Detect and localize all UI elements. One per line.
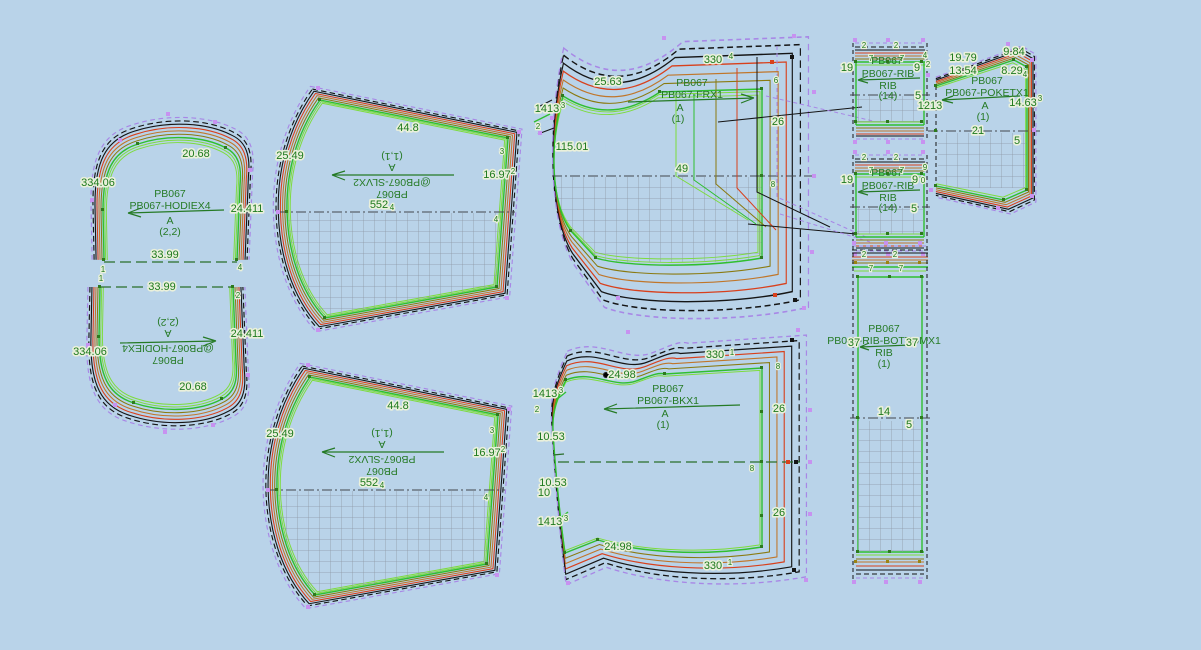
grade-point: 4: [729, 52, 734, 61]
measurement-right: 24.411: [231, 203, 264, 215]
measurement-top: 33.99: [148, 281, 176, 293]
grade-point: 3: [1038, 94, 1043, 103]
piece-title: PB067: [871, 167, 903, 179]
measurement-top: 44.8: [387, 400, 408, 412]
measurement-center: 552: [360, 477, 378, 489]
piece-code: @PB067-HODIEX4: [122, 342, 214, 354]
measurement-notch-top: 1413: [533, 388, 557, 400]
grade-point: 4: [484, 493, 489, 502]
piece-qty: (14): [879, 90, 898, 102]
grade-point: 8: [771, 180, 776, 189]
measurement-left: 334.06: [73, 346, 107, 358]
measurement-left: 19: [841, 62, 853, 74]
piece-title: PB067: [871, 55, 903, 67]
measurement-left-a: 10.53: [537, 431, 565, 443]
measurement-side: 26: [772, 116, 784, 128]
piece-qty: (2,2): [159, 226, 181, 238]
grade-point: 3: [500, 147, 505, 156]
piece-qty: (1): [672, 113, 685, 125]
grade-point: 2: [511, 167, 516, 176]
piece-title: PB067: [868, 323, 900, 335]
grade-point: 2: [926, 60, 931, 69]
piece-code: PB067-RIB-BOTTOMX1: [827, 335, 941, 347]
grade-point: 1: [730, 348, 735, 357]
measurement-hem: 24.98: [604, 541, 632, 553]
grade-point: 8: [750, 464, 755, 473]
grade-point: 4: [1023, 70, 1028, 79]
measurement-bottom: 330: [704, 560, 722, 572]
measurement-notch: 1413: [535, 103, 559, 115]
piece-code: PB067-BKX1: [637, 395, 699, 407]
grade-point: 2: [536, 122, 541, 131]
grade-point: 6: [774, 76, 779, 85]
measurement-right: 9: [914, 62, 920, 74]
piece-qty: (1): [657, 419, 670, 431]
measurement-right: 24.411: [231, 328, 264, 340]
measurement-armhole: 115.01: [556, 141, 589, 153]
grade-point: 2: [501, 445, 506, 454]
measurement-arc: 20.68: [179, 381, 207, 393]
grade-point: 2: [862, 250, 867, 259]
measurement-a: 19.79: [949, 52, 977, 64]
piece-code: @PB067-SLVX2: [353, 176, 431, 188]
measurement-notch-bottom: 1413: [538, 516, 562, 528]
grade-point: 2: [894, 41, 899, 50]
piece-qty: (1): [977, 111, 990, 123]
measurement-left: 25.49: [266, 428, 294, 440]
piece-code: PB067-SLVX2: [348, 453, 415, 465]
measurement-neck: 25.63: [594, 76, 622, 88]
measurement-width: 5: [1014, 135, 1020, 147]
piece-title: PB067: [152, 354, 184, 366]
grade-point: 7: [899, 264, 904, 273]
measurement-width: 5: [906, 419, 912, 431]
grade-point: 2: [236, 291, 241, 300]
measurement-side-bottom: 26: [773, 507, 785, 519]
measurement-shoulder: 24.98: [608, 369, 636, 381]
measurement-d: 8.29: [1001, 65, 1022, 77]
measurement-side-top: 26: [773, 403, 785, 415]
grade-point: 9: [923, 163, 928, 172]
grade-point: 2: [893, 250, 898, 259]
piece-qty: (1): [878, 358, 891, 370]
measurement-b: 9.84: [1003, 46, 1024, 58]
grade-point: 4: [390, 203, 395, 212]
measurement-left: 37: [848, 337, 860, 349]
measurement-top: 330: [706, 349, 724, 361]
measurement-arc: 20.68: [182, 148, 210, 160]
grade-point: 1: [728, 558, 733, 567]
grade-point: 0: [921, 176, 926, 185]
measurement-center: 552: [370, 199, 388, 211]
measurement-center: 49: [676, 163, 688, 175]
grade-point: 2: [862, 41, 867, 50]
grade-point: 3: [490, 426, 495, 435]
grade-point: 2: [894, 153, 899, 162]
piece-title: PB067: [676, 77, 708, 89]
grade-point: 2: [535, 405, 540, 414]
measurement-top: 330: [704, 54, 722, 66]
grade-point: 1: [99, 274, 104, 283]
measurement-width: 5: [911, 203, 917, 215]
grid-fill: [858, 421, 922, 552]
measurement-top: 44.8: [397, 122, 418, 134]
piece-title: PB067: [366, 465, 398, 477]
piece-qty: (1,1): [381, 150, 403, 162]
measurement-center: 14: [878, 406, 890, 418]
piece-qty: (2,2): [157, 316, 179, 328]
piece-title: PB067: [652, 383, 684, 395]
measurement-bottom: 33.99: [151, 249, 179, 261]
piece-title: PB067: [971, 75, 1003, 87]
measurement-right: 16.97: [483, 169, 511, 181]
grade-point: 2: [862, 153, 867, 162]
pattern-canvas: PB067 PB067-HODIEX4 A (2,2) 20.68 334.06…: [0, 0, 1201, 650]
grade-point: 8: [776, 362, 781, 371]
grade-point: 3: [564, 514, 569, 523]
grade-point: 1: [101, 265, 106, 274]
measurement-left: 25.49: [276, 150, 304, 162]
measurement-left: 334.06: [81, 177, 115, 189]
grade-point: 4: [380, 481, 385, 490]
measurement-left: 1213: [918, 100, 942, 112]
pattern-workspace: PB067 PB067-HODIEX4 A (2,2) 20.68 334.06…: [0, 0, 1201, 650]
measurement-right: 14.63: [1009, 97, 1037, 109]
piece-qty: (14): [879, 202, 898, 214]
piece-qty: (1,1): [371, 427, 393, 439]
measurement-right: 16.97: [473, 447, 501, 459]
grade-point: 3: [559, 386, 564, 395]
measurement-right: 37: [906, 337, 918, 349]
grade-point: 3: [561, 101, 566, 110]
measurement-left: 19: [841, 174, 853, 186]
piece-title: PB067: [154, 188, 186, 200]
grade-point: 7: [869, 264, 874, 273]
measurement-center: 21: [972, 125, 984, 137]
grade-point: 4: [923, 51, 928, 60]
grade-point: 4: [238, 263, 243, 272]
measurement-left-c: 10: [538, 487, 550, 499]
grade-point: 4: [494, 215, 499, 224]
